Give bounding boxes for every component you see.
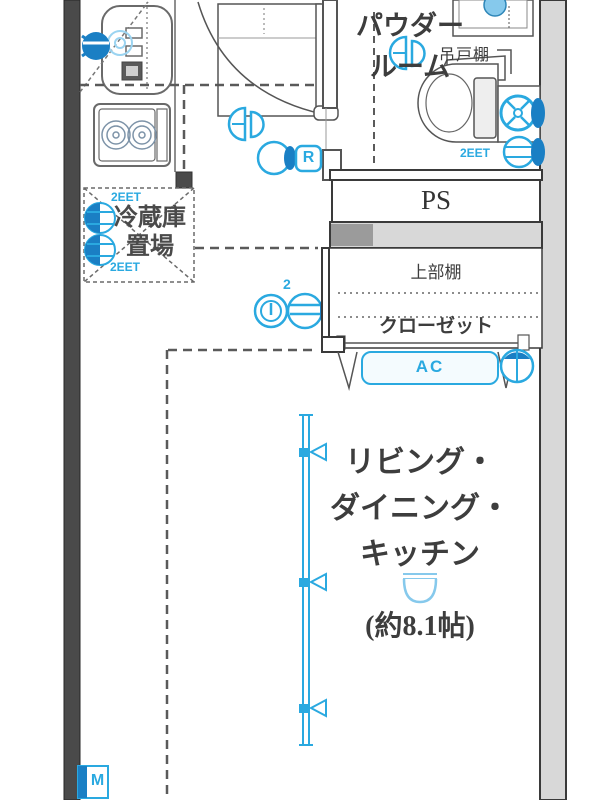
left-wall xyxy=(64,0,80,800)
ldk-size-label: (約8.1帖) xyxy=(330,604,510,644)
vanity-faucet-icon xyxy=(484,0,506,16)
fridge-space-label: 冷蔵庫 置場 xyxy=(95,204,205,262)
wall-entrance-powder xyxy=(323,0,337,108)
closet-bottom-cap xyxy=(322,337,344,352)
stove xyxy=(94,104,170,166)
entrance xyxy=(198,2,338,120)
outlet-count-label: 2 xyxy=(283,276,291,292)
ceiling-light-icon xyxy=(403,574,437,602)
r-badge: R xyxy=(296,149,321,167)
ldk-label: リビング・ ダイニング・ キッチン xyxy=(330,440,510,578)
intercom-ring-icon xyxy=(255,295,287,327)
outlet-2eet-fridge-bottom-label: 2EET xyxy=(110,260,140,274)
floor-plan-linework xyxy=(0,0,600,800)
floor-plan: パウダー ルーム 吊戸棚 2EET PS 上部棚 クローゼット AC 2EET … xyxy=(0,0,600,800)
hanging-cabinet-label: 吊戸棚 xyxy=(439,41,490,65)
ps-top-wall xyxy=(330,170,542,180)
ac-outlet-icon xyxy=(501,350,533,382)
m-badge: M xyxy=(87,772,108,790)
outlet-2eet-fridge-top-label: 2EET xyxy=(111,190,141,204)
door-leaf xyxy=(316,4,323,116)
closet-label: クローゼット xyxy=(330,311,542,338)
upper-shelf-label: 上部棚 xyxy=(330,258,542,283)
outlet-2eet-laundry-label: 2EET xyxy=(460,146,490,160)
laundry-faucet-icon xyxy=(504,137,545,167)
closet-left-wall xyxy=(322,248,329,350)
ps-label: PS xyxy=(332,185,540,216)
wall-band-dark xyxy=(331,224,373,246)
washing-machine-icon xyxy=(498,86,545,142)
ac-label: AC xyxy=(362,357,498,377)
ceiling-light-icon xyxy=(229,108,264,140)
door-swing-arc xyxy=(198,2,322,114)
